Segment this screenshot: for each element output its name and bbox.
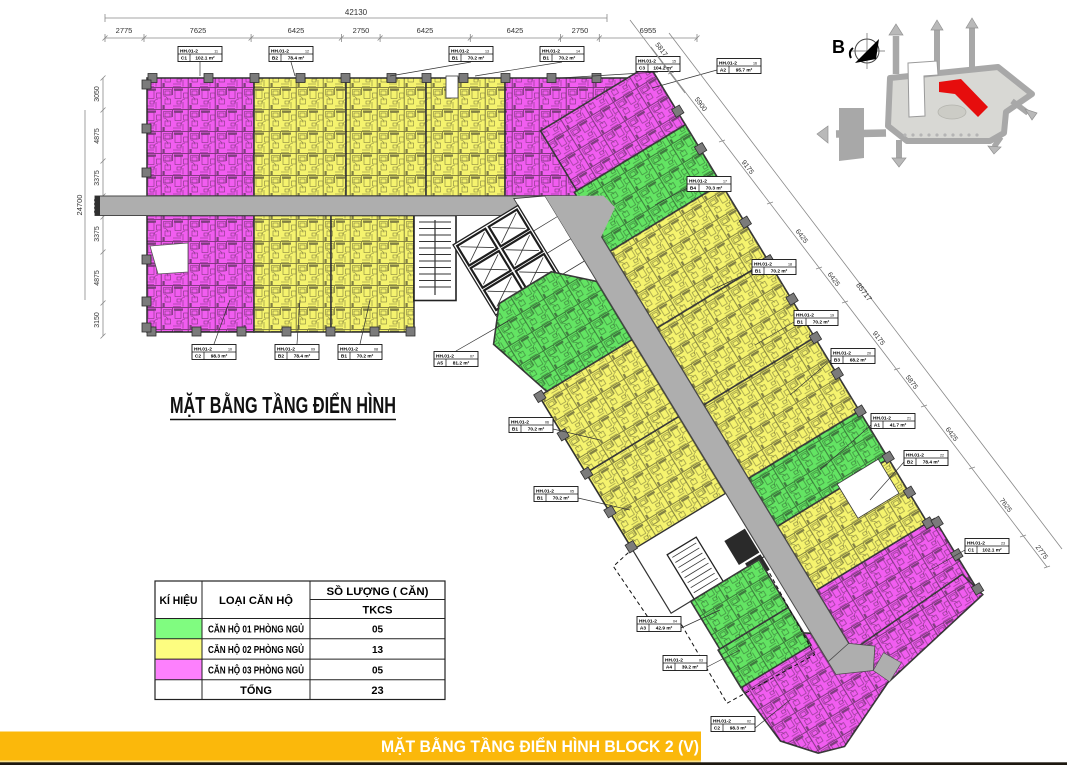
svg-text:104.2 m²: 104.2 m² [653,66,673,72]
svg-text:95.7 m²: 95.7 m² [736,68,753,74]
svg-text:C2: C2 [714,726,720,732]
svg-text:78.4 m²: 78.4 m² [288,56,305,62]
svg-text:MẶT BẰNG TẦNG ĐIỂN HÌNH: MẶT BẰNG TẦNG ĐIỂN HÌNH [170,391,396,418]
svg-text:70.2 m²: 70.2 m² [553,496,570,502]
svg-text:HH.01-2: HH.01-2 [665,658,683,664]
svg-text:HH.01-2: HH.01-2 [873,416,891,422]
svg-text:HH.01-2: HH.01-2 [542,49,560,55]
svg-text:HH.01-2: HH.01-2 [277,347,295,353]
svg-text:68.2 m²: 68.2 m² [850,358,867,364]
svg-text:6955: 6955 [640,26,657,35]
svg-text:15: 15 [672,60,676,64]
svg-text:HH.01-2: HH.01-2 [271,49,289,55]
svg-text:A4: A4 [666,665,672,671]
svg-text:19: 19 [830,314,834,318]
svg-text:B1: B1 [452,56,458,62]
svg-text:81.2 m²: 81.2 m² [453,361,470,367]
svg-text:B4: B4 [690,186,696,192]
svg-text:4875: 4875 [94,270,101,286]
svg-text:70.2 m²: 70.2 m² [771,269,788,275]
svg-text:HH.01-2: HH.01-2 [340,347,358,353]
svg-text:B1: B1 [543,56,549,62]
svg-text:03: 03 [699,659,703,663]
svg-text:C3: C3 [639,66,645,72]
svg-text:13: 13 [372,645,384,656]
svg-text:3050: 3050 [94,86,101,102]
svg-text:70.2 m²: 70.2 m² [813,320,830,326]
svg-text:98.3 m²: 98.3 m² [730,726,747,732]
svg-text:6425: 6425 [507,26,524,35]
svg-text:11: 11 [214,50,218,54]
svg-text:HH.01-2: HH.01-2 [639,619,657,625]
svg-text:HH.01-2: HH.01-2 [436,354,454,360]
svg-text:06: 06 [545,421,549,425]
svg-text:HH.01-2: HH.01-2 [796,313,814,319]
svg-text:B1: B1 [341,354,347,360]
svg-text:70.2 m²: 70.2 m² [528,427,545,433]
svg-text:13: 13 [485,50,489,54]
svg-text:C1: C1 [181,56,187,62]
svg-text:98.3 m²: 98.3 m² [211,354,228,360]
svg-text:HH.01-2: HH.01-2 [906,453,924,459]
svg-text:41.7 m²: 41.7 m² [890,423,907,429]
svg-text:05: 05 [372,625,384,636]
svg-text:24700: 24700 [75,195,84,216]
svg-text:39.2 m²: 39.2 m² [682,665,699,671]
svg-text:C2: C2 [195,354,201,360]
svg-text:70.2 m²: 70.2 m² [468,56,485,62]
svg-text:B2: B2 [907,460,913,466]
svg-text:A3: A3 [640,626,646,632]
svg-text:2750: 2750 [572,26,589,35]
svg-text:4875: 4875 [94,128,101,144]
svg-text:CĂN HỘ 02 PHÒNG NGỦ: CĂN HỘ 02 PHÒNG NGỦ [208,643,304,656]
svg-text:12: 12 [305,50,309,54]
svg-text:B1: B1 [797,320,803,326]
svg-text:B1: B1 [512,427,518,433]
svg-text:HH.01-2: HH.01-2 [833,351,851,357]
svg-text:42130: 42130 [345,8,368,17]
svg-text:02: 02 [747,720,751,724]
svg-text:HH.01-2: HH.01-2 [754,262,772,268]
svg-text:07: 07 [470,355,474,359]
svg-text:6425: 6425 [417,26,434,35]
svg-text:B: B [832,37,845,57]
svg-text:42.9 m²: 42.9 m² [656,626,673,632]
svg-text:KÍ HIỆU: KÍ HIỆU [160,594,198,607]
svg-text:A5: A5 [437,361,443,367]
svg-text:09: 09 [311,348,315,352]
svg-text:B1: B1 [537,496,543,502]
svg-text:08: 08 [374,348,378,352]
svg-text:HH.01-2: HH.01-2 [194,347,212,353]
svg-text:HH.01-2: HH.01-2 [689,179,707,185]
svg-text:B1: B1 [755,269,761,275]
svg-text:HH.01-2: HH.01-2 [713,719,731,725]
svg-text:05: 05 [372,666,384,677]
svg-text:A2: A2 [720,68,726,74]
svg-text:23: 23 [371,685,383,697]
svg-text:MẶT BẰNG TẦNG ĐIỂN HÌNH BLOCK: MẶT BẰNG TẦNG ĐIỂN HÌNH BLOCK 2 (V) [381,737,699,756]
svg-text:B2: B2 [278,354,284,360]
svg-text:2775: 2775 [116,26,133,35]
svg-text:SỒ LƯỢNG ( CĂN): SỒ LƯỢNG ( CĂN) [327,585,429,598]
svg-text:3375: 3375 [94,226,101,242]
svg-text:HH.01-2: HH.01-2 [180,49,198,55]
svg-text:TKCS: TKCS [363,605,393,617]
svg-text:6425: 6425 [288,26,305,35]
svg-text:B2: B2 [272,56,278,62]
svg-text:CĂN HỘ 03 PHÒNG NGỦ: CĂN HỘ 03 PHÒNG NGỦ [208,664,304,677]
svg-text:HH.01-2: HH.01-2 [719,61,737,67]
svg-text:17: 17 [723,180,727,184]
svg-text:3375: 3375 [94,170,101,186]
svg-text:HH.01-2: HH.01-2 [638,59,656,65]
svg-text:CĂN HỘ 01 PHÒNG NGỦ: CĂN HỘ 01 PHÒNG NGỦ [208,623,304,636]
svg-text:70.3 m²: 70.3 m² [706,186,723,192]
svg-text:23: 23 [1001,542,1005,546]
svg-text:LOẠI CĂN HỘ: LOẠI CĂN HỘ [219,594,293,607]
svg-text:HH.01-2: HH.01-2 [451,49,469,55]
svg-text:22: 22 [940,454,944,458]
svg-text:20: 20 [867,352,871,356]
svg-text:HH.01-2: HH.01-2 [967,541,985,547]
svg-text:21: 21 [907,417,911,421]
svg-text:C1: C1 [968,548,974,554]
svg-text:18: 18 [788,263,792,267]
svg-text:05: 05 [570,490,574,494]
svg-text:TỔNG: TỔNG [240,684,272,697]
svg-text:10: 10 [228,348,232,352]
svg-text:2750: 2750 [353,26,370,35]
svg-text:70.2 m²: 70.2 m² [357,354,374,360]
svg-text:78.4 m²: 78.4 m² [923,460,940,466]
svg-text:16: 16 [753,62,757,66]
svg-text:70.2 m²: 70.2 m² [559,56,576,62]
svg-text:04: 04 [673,620,677,624]
svg-text:7625: 7625 [190,26,207,35]
svg-text:B3: B3 [834,358,840,364]
svg-text:78.4 m²: 78.4 m² [294,354,311,360]
svg-text:HH.01-2: HH.01-2 [511,420,529,426]
svg-text:102.1 m²: 102.1 m² [982,548,1002,554]
svg-text:3150: 3150 [94,312,101,328]
svg-text:14: 14 [576,50,580,54]
svg-text:A1: A1 [874,423,880,429]
svg-text:102.1 m²: 102.1 m² [195,56,215,62]
svg-text:HH.01-2: HH.01-2 [536,489,554,495]
